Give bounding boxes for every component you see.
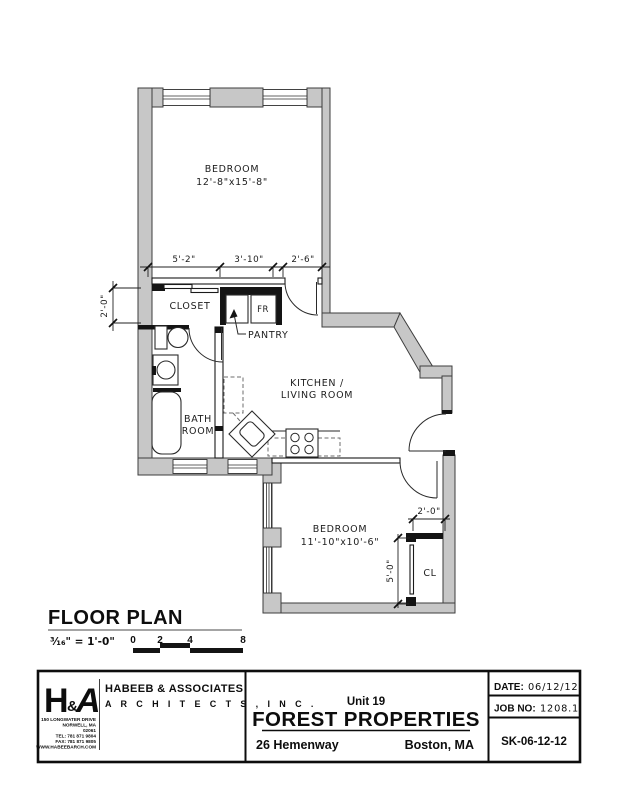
closet-slider-panel-1 xyxy=(164,285,192,289)
entry-door-swing xyxy=(409,414,446,451)
upper-cabinet-dashed xyxy=(224,377,243,413)
scale-tick-8: 8 xyxy=(240,635,246,646)
fridge-label: FR xyxy=(257,305,269,315)
pantry-label: PANTRY xyxy=(248,330,289,341)
kitchen-label-line1: KITCHEN / xyxy=(290,378,344,389)
job-label: JOB NO: xyxy=(494,704,536,715)
dim-3-10: 3'-10" xyxy=(234,255,263,265)
logo-h: H xyxy=(44,682,69,720)
bath-sink-tap xyxy=(152,366,156,375)
unit-number: Unit 19 xyxy=(347,696,385,708)
closet-slider-panel-2 xyxy=(191,289,218,293)
address-line-6: WWW.HABEEBARCH.COM xyxy=(36,745,96,750)
base-cabinet-dashed-1 xyxy=(268,438,286,456)
floor-plan-drawing: 5'-2" 3'-10" 2'-6" 2'-0" 2'-0" xyxy=(100,88,455,613)
graphic-scale-bar: 0 2 4 8 xyxy=(130,635,246,653)
address-line-4: TEL: 781 871 9804 xyxy=(56,734,97,739)
project-street: 26 Hemenway xyxy=(256,738,339,752)
project-name: FOREST PROPERTIES xyxy=(252,708,480,731)
date-label: DATE: xyxy=(494,682,524,693)
kitchen-fixtures xyxy=(224,377,340,457)
issue-cell: DATE: 06/12/12 JOB NO: 1208.1 SK-06-12-1… xyxy=(494,682,579,748)
sheet: 5'-2" 3'-10" 2'-6" 2'-0" 2'-0" xyxy=(0,0,618,800)
bedroom1-dims: 12'-8"x15'-8" xyxy=(196,177,268,188)
window-south-2 xyxy=(228,460,257,474)
job-value: 1208.1 xyxy=(540,704,579,715)
bath-label-line1: BATH xyxy=(184,414,212,425)
date-value: 06/12/12 xyxy=(528,682,578,693)
cl-door-leaf xyxy=(410,545,414,594)
base-cabinet-dashed-2 xyxy=(318,438,340,456)
firm-address: 150 LONGWATER DRIVE NORWELL, MA 02061 TE… xyxy=(36,717,96,750)
kitchen-label-line2: LIVING ROOM xyxy=(281,390,353,401)
address-line-3: 02061 xyxy=(83,728,96,733)
address-line-1: 150 LONGWATER DRIVE xyxy=(41,717,96,722)
window-south-1 xyxy=(173,460,207,474)
title-block: H & A HABEEB & ASSOCIATES A R C H I T E … xyxy=(36,671,580,762)
address-line-5: FAX: 781 871 9805 xyxy=(55,739,96,744)
room-labels: BEDROOM 12'-8"x15'-8" CLOSET FR PANTRY K… xyxy=(169,164,436,579)
address-line-2: NORWELL, MA xyxy=(62,723,96,728)
project-city: Boston, MA xyxy=(405,738,474,752)
toilet-bowl xyxy=(168,328,188,348)
dim-2-0-closet: 2'-0" xyxy=(100,294,110,317)
bedroom1-label: BEDROOM xyxy=(205,164,260,175)
firm-name: HABEEB & ASSOCIATES xyxy=(105,683,243,695)
logo-a: A xyxy=(75,682,101,720)
dim-2-6: 2'-6" xyxy=(291,255,314,265)
pantry-unit xyxy=(220,287,282,325)
bedroom1-door-swing xyxy=(285,282,318,315)
bedroom2-label: BEDROOM xyxy=(313,524,368,535)
window-bedroom2-upper xyxy=(264,483,272,528)
dim-cl-height: 5'-0" xyxy=(386,534,410,608)
dim-2-0-cl: 2'-0" xyxy=(417,507,440,517)
scale-tick-0: 0 xyxy=(130,635,136,646)
bath-label-line2: ROOM xyxy=(182,426,215,437)
toilet-tank xyxy=(155,326,167,349)
dim-closet-depth: 2'-0" xyxy=(100,281,141,331)
sheet-number: SK-06-12-12 xyxy=(501,736,567,748)
window-bedroom2-lower xyxy=(264,547,272,593)
firm-logo: H & A xyxy=(44,682,101,720)
drawing-title: FLOOR PLAN xyxy=(48,607,183,629)
drawing-scale: ³⁄₁₆" = 1'-0" xyxy=(50,636,115,648)
bath-ledge xyxy=(153,388,181,392)
pantry-cabinet xyxy=(226,295,248,323)
dim-5-2: 5'-2" xyxy=(172,255,195,265)
stove xyxy=(286,429,318,457)
window-bedroom1-left xyxy=(163,90,210,106)
bedroom2-dims: 11'-10"x10'-6" xyxy=(301,537,380,548)
closet-label: CLOSET xyxy=(169,301,210,312)
dim-top-string: 5'-2" 3'-10" 2'-6" xyxy=(140,255,330,277)
scale-block: FLOOR PLAN ³⁄₁₆" = 1'-0" 0 2 4 8 xyxy=(48,607,246,653)
window-bedroom1-right xyxy=(263,90,307,106)
bedroom2-door-swing xyxy=(400,461,437,498)
bath-sink-basin xyxy=(157,361,175,379)
cl-label: CL xyxy=(423,568,436,579)
dim-5-0: 5'-0" xyxy=(386,559,396,582)
bathtub xyxy=(152,392,181,454)
